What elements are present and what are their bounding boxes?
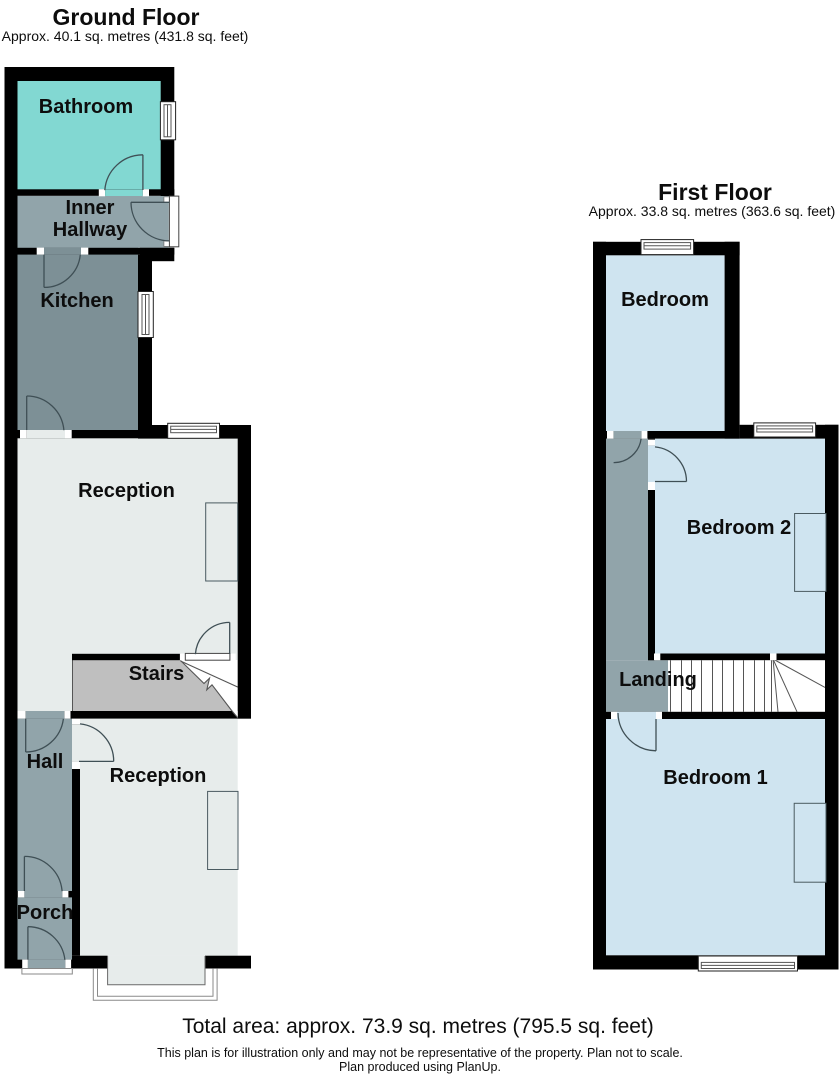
svg-text:Approx. 40.1 sq. metres (431.8: Approx. 40.1 sq. metres (431.8 sq. feet) (2, 28, 249, 44)
svg-text:This plan is for illustration: This plan is for illustration only and m… (157, 1046, 683, 1060)
svg-text:Approx. 33.8 sq. metres (363.6: Approx. 33.8 sq. metres (363.6 sq. feet) (589, 203, 836, 219)
svg-text:Reception: Reception (78, 480, 175, 502)
svg-text:Bedroom 1: Bedroom 1 (663, 767, 767, 789)
svg-text:Ground Floor: Ground Floor (53, 4, 200, 30)
svg-text:Bathroom: Bathroom (39, 96, 133, 118)
svg-text:Bedroom 2: Bedroom 2 (687, 517, 791, 539)
svg-text:Porch: Porch (17, 902, 74, 924)
svg-text:Landing: Landing (619, 669, 697, 691)
svg-text:Hall: Hall (27, 751, 64, 773)
svg-text:Hallway: Hallway (53, 219, 128, 241)
svg-text:Plan produced using PlanUp.: Plan produced using PlanUp. (339, 1060, 501, 1074)
svg-text:First Floor: First Floor (658, 179, 772, 205)
svg-text:Kitchen: Kitchen (40, 290, 113, 312)
svg-text:Total area: approx. 73.9 sq. m: Total area: approx. 73.9 sq. metres (795… (182, 1015, 654, 1038)
svg-text:Inner: Inner (66, 197, 115, 219)
svg-text:Reception: Reception (110, 765, 207, 787)
svg-text:Stairs: Stairs (129, 663, 185, 685)
svg-text:Bedroom: Bedroom (621, 289, 709, 311)
